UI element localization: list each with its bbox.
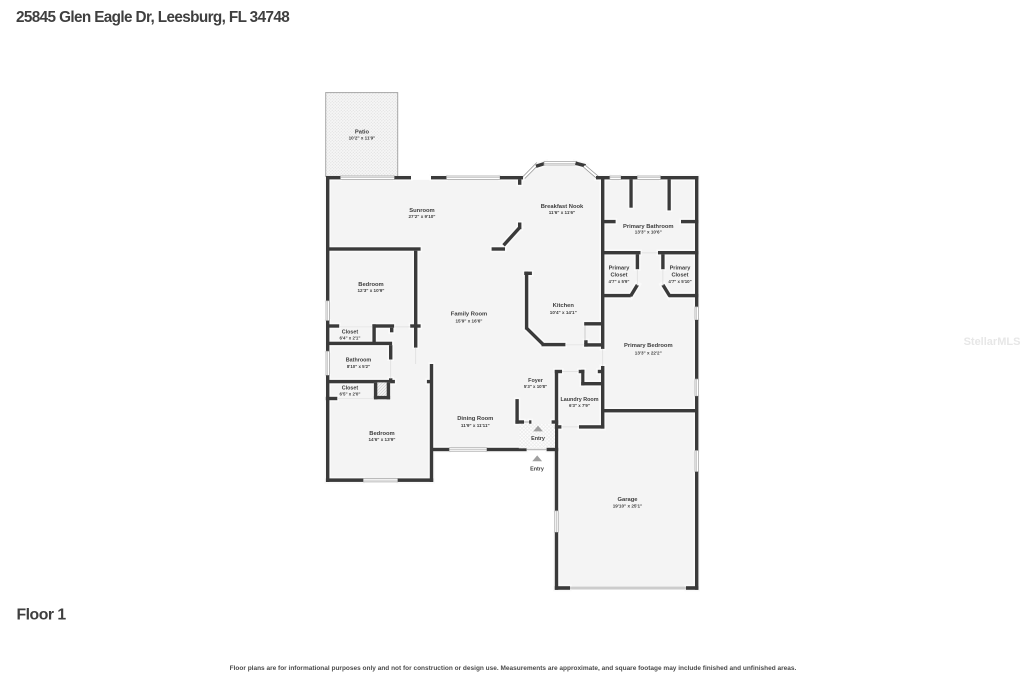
svg-text:11'6" x 11'6": 11'6" x 11'6" bbox=[549, 210, 575, 215]
svg-text:Garage: Garage bbox=[618, 497, 639, 503]
svg-text:13'3" x 22'2": 13'3" x 22'2" bbox=[635, 351, 662, 356]
svg-text:Entry: Entry bbox=[531, 436, 545, 442]
svg-text:12'3" x 10'9": 12'3" x 10'9" bbox=[358, 288, 385, 293]
svg-text:Floor plans are for informatio: Floor plans are for informational purpos… bbox=[230, 665, 797, 672]
svg-text:5'3" x 10'8": 5'3" x 10'8" bbox=[524, 384, 547, 389]
svg-text:6'5" x 2'0": 6'5" x 2'0" bbox=[340, 391, 361, 396]
svg-text:6'4" x 2'1": 6'4" x 2'1" bbox=[340, 336, 361, 341]
svg-text:10'4" x 14'1": 10'4" x 14'1" bbox=[550, 310, 577, 315]
svg-text:StellarMLS: StellarMLS bbox=[964, 336, 1021, 348]
svg-text:10'2" x 11'9": 10'2" x 11'9" bbox=[349, 136, 376, 141]
svg-text:27'2" x 9'10": 27'2" x 9'10" bbox=[409, 214, 436, 219]
svg-text:Entry: Entry bbox=[530, 467, 544, 473]
svg-text:25845 Glen Eagle Dr, Leesburg,: 25845 Glen Eagle Dr, Leesburg, FL 34748 bbox=[16, 9, 290, 26]
svg-text:Family Room: Family Room bbox=[451, 312, 487, 318]
svg-text:19'10" x 25'1": 19'10" x 25'1" bbox=[613, 503, 643, 508]
svg-text:Bedroom: Bedroom bbox=[358, 282, 383, 288]
svg-text:8'10" x 5'2": 8'10" x 5'2" bbox=[347, 364, 370, 369]
svg-text:13'3" x 10'6": 13'3" x 10'6" bbox=[635, 229, 662, 234]
svg-text:4'7" x 5'9": 4'7" x 5'9" bbox=[609, 279, 630, 284]
svg-text:Primary: Primary bbox=[670, 266, 692, 272]
svg-text:Primary: Primary bbox=[609, 266, 631, 272]
svg-text:Bathroom: Bathroom bbox=[346, 358, 372, 364]
svg-text:Floor 1: Floor 1 bbox=[17, 607, 67, 624]
svg-text:11'9" x 11'11": 11'9" x 11'11" bbox=[461, 423, 490, 428]
svg-text:14'6" x 13'9": 14'6" x 13'9" bbox=[369, 437, 396, 442]
svg-text:Primary Bedroom: Primary Bedroom bbox=[624, 343, 673, 349]
svg-text:Dining Room: Dining Room bbox=[457, 416, 493, 422]
svg-text:15'9" x 16'6": 15'9" x 16'6" bbox=[456, 318, 483, 323]
svg-text:Closet: Closet bbox=[610, 273, 627, 279]
svg-text:Kitchen: Kitchen bbox=[553, 303, 575, 309]
svg-text:6'3" x 7'9": 6'3" x 7'9" bbox=[569, 403, 590, 408]
svg-text:Patio: Patio bbox=[355, 130, 370, 136]
svg-text:Closet: Closet bbox=[671, 273, 688, 279]
svg-text:4'7" x 5'10": 4'7" x 5'10" bbox=[668, 279, 691, 284]
